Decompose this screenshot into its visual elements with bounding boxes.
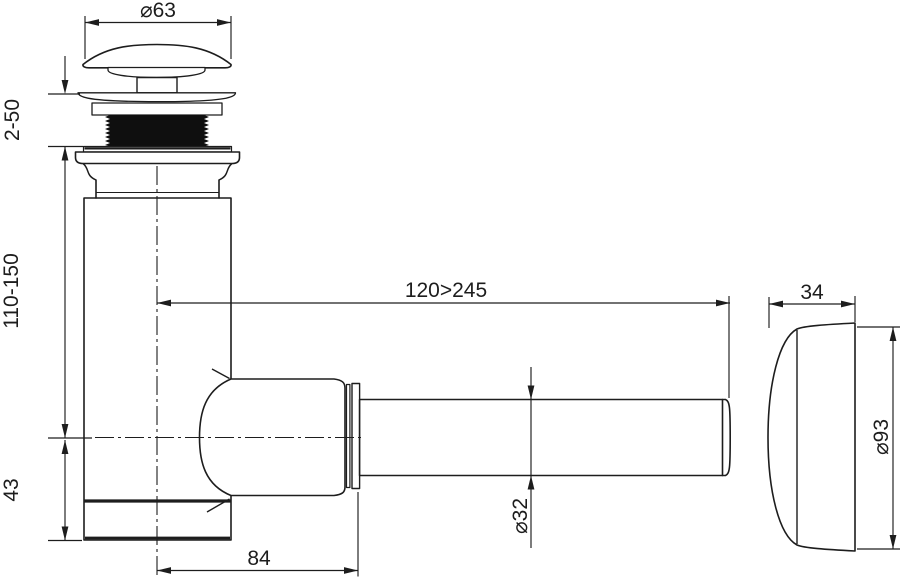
outlet-pipe: [360, 400, 723, 476]
arrowhead-right: [217, 19, 231, 26]
arrowhead-left: [157, 567, 171, 574]
drawing-canvas: ⌀63 2-50 110-150 43: [0, 0, 900, 577]
cap-stem: [137, 78, 177, 93]
dim-label-center-to-bottom: 43: [0, 478, 23, 501]
arrowhead-down: [62, 424, 69, 438]
cap-washer: [108, 68, 205, 78]
dim-label-center-to-nut: 84: [247, 547, 271, 570]
dim-center-to-bottom: 43: [0, 440, 82, 541]
compression-ring: [347, 385, 350, 488]
top-flange: [76, 152, 240, 164]
dim-label-outlet-length: 120>245: [405, 279, 487, 302]
arrowhead-up: [62, 440, 69, 454]
arrowhead-down: [62, 80, 69, 94]
flange-disc: [78, 93, 236, 102]
dim-label-height-range: 110-150: [0, 253, 23, 329]
arrowhead-left: [769, 301, 783, 308]
dim-label-cap-diameter: ⌀63: [140, 0, 176, 22]
dim-cap-depth: 34: [769, 281, 855, 328]
dim-height-range: 110-150: [0, 147, 92, 439]
dim-label-thread-range: 2-50: [1, 99, 24, 141]
arrowhead-down: [62, 527, 69, 541]
arrowhead-right: [841, 301, 855, 308]
front-view: [76, 45, 731, 577]
arrowhead-up: [528, 476, 535, 490]
arrowhead-down: [890, 535, 897, 549]
compression-nut: [352, 384, 360, 489]
arrowhead-right: [716, 300, 730, 307]
popup-cap-top: [83, 45, 231, 68]
dim-label-cap-depth: 34: [800, 281, 824, 304]
arrowhead-left: [85, 19, 99, 26]
dim-cap-face-diameter: ⌀93: [857, 327, 900, 549]
spacer-band: [92, 103, 222, 115]
technical-drawing-page: ⌀63 2-50 110-150 43: [0, 0, 900, 577]
threaded-section: [105, 115, 209, 147]
arrowhead-down: [528, 386, 535, 400]
pipe-end-cap: [723, 400, 731, 476]
neck-curve-left: [83, 164, 96, 181]
dim-thread-range: 2-50: [1, 56, 83, 161]
cap-side-profile: [768, 323, 855, 551]
side-view: [768, 323, 855, 551]
neck-curve-right: [219, 164, 232, 181]
arrowhead-up: [890, 327, 897, 341]
arrowhead-right: [344, 567, 358, 574]
dim-label-cap-face-diameter: ⌀93: [870, 419, 893, 455]
dim-label-pipe-diameter: ⌀32: [509, 498, 532, 534]
